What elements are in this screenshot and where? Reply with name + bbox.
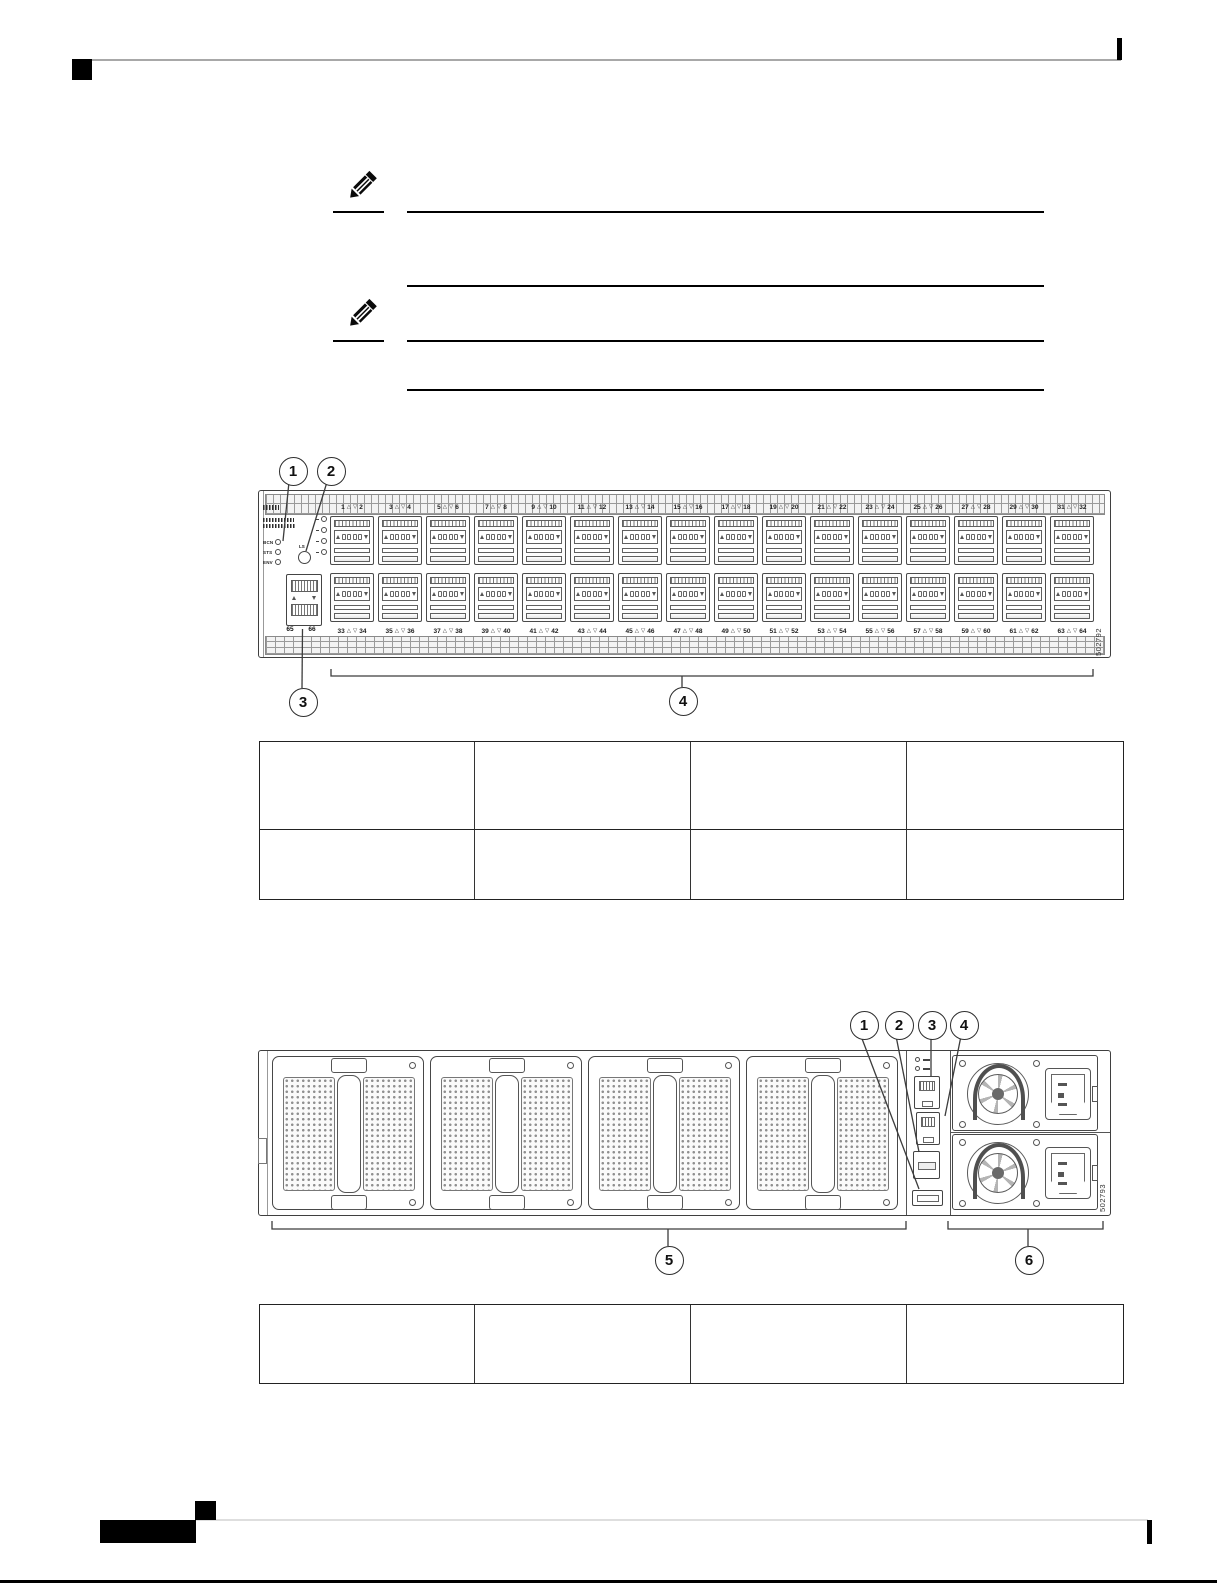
- contact-pad: [443, 534, 447, 540]
- contact-pad: [923, 591, 927, 597]
- port-pair-label: 41△▽42: [522, 627, 566, 636]
- qsfp-port: [1002, 573, 1046, 622]
- triangle-icon: △: [875, 629, 879, 635]
- triangle-icon: ▽: [1073, 505, 1077, 511]
- contact-pad: [785, 534, 789, 540]
- contact-pad: [886, 534, 890, 540]
- port-pair-label: 37△▽38: [426, 627, 470, 636]
- triangle-icon: △: [1019, 505, 1023, 511]
- port-column: 19△▽2051△▽52: [762, 503, 806, 637]
- port-pair-label: 1△▽2: [330, 503, 374, 512]
- mgmt-led: [915, 1057, 920, 1062]
- callout-front-2: 2: [317, 457, 346, 486]
- contact-pad: [689, 591, 693, 597]
- port-number: 29: [1010, 504, 1017, 511]
- contact-pad: [342, 591, 346, 597]
- callout-rear-4: 4: [950, 1011, 979, 1040]
- triangle-down-icon: [364, 592, 368, 596]
- contact-pad: [582, 591, 586, 597]
- port-number: 50: [743, 628, 750, 635]
- psu: [952, 1134, 1098, 1210]
- triangle-down-icon: [1036, 535, 1040, 539]
- fan-grille: [521, 1077, 573, 1191]
- triangle-icon: △: [587, 629, 591, 635]
- note-top-rule: [407, 211, 1044, 213]
- triangle-down-icon: [940, 535, 944, 539]
- qsfp-port: [810, 573, 854, 622]
- port-number: 46: [647, 628, 654, 635]
- contact-pad: [886, 591, 890, 597]
- qsfp-port: [1050, 516, 1094, 565]
- chassis-ear-line: [263, 491, 264, 657]
- contact-pad: [598, 534, 602, 540]
- contact-pad: [881, 591, 885, 597]
- triangle-icon: △: [971, 505, 975, 511]
- contact-pad: [1067, 534, 1071, 540]
- port-number: 2: [359, 504, 363, 511]
- port-pair-label: 13△▽14: [618, 503, 662, 512]
- port-column: 27△▽2859△▽60: [954, 503, 998, 637]
- port-number: 56: [887, 628, 894, 635]
- triangle-up-icon: [480, 535, 484, 539]
- port-column: 29△▽3061△▽62: [1002, 503, 1046, 637]
- port-number: 21: [818, 504, 825, 511]
- triangle-up-icon: [912, 592, 916, 596]
- footer-page-marker-small: [195, 1501, 216, 1520]
- port-number: 34: [359, 628, 366, 635]
- triangle-up-icon: [768, 592, 772, 596]
- contact-pad: [726, 534, 730, 540]
- triangle-icon: △: [347, 629, 351, 635]
- contact-pad: [598, 591, 602, 597]
- triangle-up-icon: [672, 592, 676, 596]
- screw: [1033, 1200, 1040, 1207]
- screw: [567, 1199, 574, 1206]
- contact-pad: [870, 591, 874, 597]
- pencil-note-icon: [341, 298, 383, 342]
- triangle-down-icon: [844, 535, 848, 539]
- triangle-up-icon: [1056, 535, 1060, 539]
- sts-led: [275, 549, 281, 555]
- contact-pad: [401, 591, 405, 597]
- ls-button: [298, 551, 311, 564]
- contact-pad: [1073, 591, 1077, 597]
- port-number: 19: [770, 504, 777, 511]
- port-number: 27: [962, 504, 969, 511]
- contact-pad: [438, 591, 442, 597]
- port-number: 20: [791, 504, 798, 511]
- qsfp-port: [570, 516, 614, 565]
- triangle-down-icon: [892, 535, 896, 539]
- header-right-tick: [1117, 38, 1122, 60]
- qsfp-port: [474, 516, 518, 565]
- port-number: 9: [531, 504, 535, 511]
- contact-pad: [742, 591, 746, 597]
- port-pair-label: 29△▽30: [1002, 503, 1046, 512]
- qsfp-port: [618, 516, 662, 565]
- contact-pad: [635, 591, 639, 597]
- port-number: 12: [599, 504, 606, 511]
- triangle-down-icon: [700, 592, 704, 596]
- contact-pad: [1078, 591, 1082, 597]
- port-pair-label: 9△▽10: [522, 503, 566, 512]
- contact-pad: [1073, 534, 1077, 540]
- sfp-port: [913, 1151, 940, 1179]
- contact-pad: [491, 534, 495, 540]
- fan-latch: [331, 1058, 367, 1073]
- screw: [725, 1062, 732, 1069]
- triangle-icon: ▽: [401, 629, 405, 635]
- qsfp-port: [330, 516, 374, 565]
- port-number: 33: [338, 628, 345, 635]
- contact-pad: [790, 591, 794, 597]
- port-number: 7: [485, 504, 489, 511]
- port-column: 5△▽637△▽38: [426, 503, 470, 637]
- screw: [567, 1062, 574, 1069]
- contact-pad: [646, 534, 650, 540]
- qsfp-port: [570, 573, 614, 622]
- table-cell: [907, 830, 1123, 899]
- port-pair-label: 19△▽20: [762, 503, 806, 512]
- port-number: 47: [674, 628, 681, 635]
- mgmt-led: [915, 1066, 920, 1071]
- port-number: 10: [549, 504, 556, 511]
- callout-rear-5: 5: [655, 1246, 684, 1275]
- contact-pad: [534, 534, 538, 540]
- contact-pad: [497, 534, 501, 540]
- port-number: 4: [407, 504, 411, 511]
- port-number: 11: [578, 504, 585, 511]
- triangle-icon: ▽: [449, 629, 453, 635]
- contact-pad: [726, 591, 730, 597]
- psu: [952, 1055, 1098, 1131]
- triangle-down-icon: [796, 592, 800, 596]
- qsfp-port: [666, 573, 710, 622]
- triangle-icon: △: [443, 505, 447, 511]
- triangle-icon: ▽: [593, 505, 597, 511]
- port-number: 38: [455, 628, 462, 635]
- figure-number-front: 502792: [1094, 592, 1103, 656]
- qsfp-port: [714, 573, 758, 622]
- port-pair-label: 61△▽62: [1002, 627, 1046, 636]
- triangle-down-icon: [604, 592, 608, 596]
- contact-pad: [875, 534, 879, 540]
- bcn-led-label: BCN: [263, 540, 273, 545]
- note-bottom-rule: [407, 285, 1044, 287]
- triangle-icon: △: [923, 629, 927, 635]
- triangle-down-icon: [364, 535, 368, 539]
- triangle-icon: ▽: [1025, 505, 1029, 511]
- contact-pad: [534, 591, 538, 597]
- note-icon-underline: [333, 211, 384, 213]
- port-pair-label: 59△▽60: [954, 627, 998, 636]
- triangle-up-icon: [384, 535, 388, 539]
- psu-latch: [1092, 1086, 1098, 1102]
- qsfp-port: [666, 516, 710, 565]
- fan-latch: [647, 1058, 683, 1073]
- table-cell: [475, 830, 691, 899]
- qsfp-port: [522, 573, 566, 622]
- qsfp-port: [1002, 516, 1046, 565]
- chassis-ear-line: [267, 1051, 268, 1215]
- contact-pad: [1078, 534, 1082, 540]
- fan-latch: [489, 1058, 525, 1073]
- port-pair-label: 3△▽4: [378, 503, 422, 512]
- contact-pad: [822, 534, 826, 540]
- port-number: 16: [695, 504, 702, 511]
- fan-module: [430, 1056, 582, 1210]
- contact-pad: [443, 591, 447, 597]
- triangle-icon: △: [827, 629, 831, 635]
- table-cell: [475, 742, 691, 830]
- port-number: 31: [1058, 504, 1065, 511]
- contact-pad: [582, 534, 586, 540]
- contact-pad: [678, 534, 682, 540]
- qsfp-port: [474, 573, 518, 622]
- contact-pad: [1019, 534, 1023, 540]
- note-top-rule: [407, 340, 1044, 343]
- mgmt-led-label: [923, 1059, 930, 1061]
- port-pair-label: 35△▽36: [378, 627, 422, 636]
- note-icon-underline: [333, 340, 384, 343]
- fan-grille: [679, 1077, 731, 1191]
- contact-pad: [353, 591, 357, 597]
- port-number: 32: [1079, 504, 1086, 511]
- fan-grille: [441, 1077, 493, 1191]
- table-cell: [907, 1305, 1123, 1383]
- contact-pad: [683, 591, 687, 597]
- triangle-icon: △: [779, 505, 783, 511]
- screw: [883, 1062, 890, 1069]
- triangle-up-icon: [816, 592, 820, 596]
- port-pair-label: 27△▽28: [954, 503, 998, 512]
- triangle-down-icon: [556, 592, 560, 596]
- screw: [1033, 1139, 1040, 1146]
- triangle-up-icon: [336, 592, 340, 596]
- footer-right-tick: [1147, 1520, 1152, 1544]
- triangle-up-icon: [864, 535, 868, 539]
- status-led: [321, 538, 327, 544]
- qsfp-port: [954, 573, 998, 622]
- port-number: 44: [599, 628, 606, 635]
- port-number: 23: [866, 504, 873, 511]
- triangle-up-icon: [480, 592, 484, 596]
- port-number: 60: [983, 628, 990, 635]
- port-pair-label: 53△▽54: [810, 627, 854, 636]
- triangle-down-icon: [508, 592, 512, 596]
- contact-pad: [982, 591, 986, 597]
- port-number: 14: [647, 504, 654, 511]
- screw: [883, 1199, 890, 1206]
- triangle-up-icon: [960, 592, 964, 596]
- port-number: 22: [839, 504, 846, 511]
- port-pair-label: 23△▽24: [858, 503, 902, 512]
- contact-pad: [779, 591, 783, 597]
- contact-pad: [934, 591, 938, 597]
- contact-pad: [966, 591, 970, 597]
- contact-pad: [929, 591, 933, 597]
- fan-grille: [757, 1077, 809, 1191]
- triangle-icon: △: [875, 505, 879, 511]
- qsfp-port: [858, 516, 902, 565]
- triangle-icon: △: [731, 505, 735, 511]
- contact-pad: [502, 534, 506, 540]
- status-led-tick: [316, 530, 319, 531]
- screw: [959, 1200, 966, 1207]
- port-number: 37: [434, 628, 441, 635]
- port-number: 49: [722, 628, 729, 635]
- fan-handle-bar: [811, 1075, 835, 1193]
- callout-front-4: 4: [669, 687, 698, 716]
- callout-rear-6: 6: [1015, 1246, 1044, 1275]
- contact-pad: [875, 591, 879, 597]
- port-column: 3△▽435△▽36: [378, 503, 422, 637]
- triangle-icon: △: [491, 505, 495, 511]
- status-led: [321, 527, 327, 533]
- status-led-tick: [316, 541, 319, 542]
- screw: [959, 1121, 966, 1128]
- contact-pad: [1062, 591, 1066, 597]
- triangle-icon: ▽: [543, 505, 547, 511]
- triangle-icon: ▽: [881, 629, 885, 635]
- port-number: 25: [914, 504, 921, 511]
- port-number: 6: [455, 504, 459, 511]
- fan-grille: [283, 1077, 335, 1191]
- port-column: 15△▽1647△▽48: [666, 503, 710, 637]
- triangle-icon: ▽: [497, 629, 501, 635]
- triangle-up-icon: [576, 592, 580, 596]
- triangle-down-icon: [412, 592, 416, 596]
- contact-pad: [838, 591, 842, 597]
- contact-pad: [390, 534, 394, 540]
- triangle-down-icon: [460, 535, 464, 539]
- contact-pad: [449, 591, 453, 597]
- fan-handle-bar: [495, 1075, 519, 1193]
- port-pair-label: 43△▽44: [570, 627, 614, 636]
- triangle-up-icon: [576, 535, 580, 539]
- contact-pad: [694, 534, 698, 540]
- contact-pad: [737, 591, 741, 597]
- contact-pad: [683, 534, 687, 540]
- port-number: 42: [551, 628, 558, 635]
- port-number: 59: [962, 628, 969, 635]
- chassis-ear-latch: [258, 1138, 267, 1164]
- port-pair-label: 25△▽26: [906, 503, 950, 512]
- triangle-up-icon: [816, 535, 820, 539]
- contact-pad: [1014, 591, 1018, 597]
- triangle-icon: ▽: [785, 629, 789, 635]
- port-number: 18: [743, 504, 750, 511]
- port-column: 11△▽1243△▽44: [570, 503, 614, 637]
- triangle-icon: ▽: [977, 629, 981, 635]
- port-number: 3: [389, 504, 393, 511]
- contact-pad: [630, 534, 634, 540]
- triangle-icon: ▽: [929, 629, 933, 635]
- qsfp-port: [426, 516, 470, 565]
- port-65-label: 65: [283, 626, 297, 633]
- qsfp-port: [906, 573, 950, 622]
- triangle-down-icon: [988, 592, 992, 596]
- port-number: 58: [935, 628, 942, 635]
- triangle-icon: △: [1067, 505, 1071, 511]
- qsfp-port: [762, 516, 806, 565]
- front-panel-legend-table: [259, 741, 1124, 900]
- triangle-icon: △: [395, 505, 399, 511]
- triangle-down-icon: [940, 592, 944, 596]
- triangle-down-icon: [700, 535, 704, 539]
- contact-pad: [347, 591, 351, 597]
- triangle-up-icon: [1056, 592, 1060, 596]
- port-pair-label: 57△▽58: [906, 627, 950, 636]
- triangle-up-icon: [1008, 592, 1012, 596]
- port-number: 26: [935, 504, 942, 511]
- port-number: 52: [791, 628, 798, 635]
- triangle-icon: △: [491, 629, 495, 635]
- document-page: BCN STS ENV LS 65 66 1△▽233△▽343△▽435△▽3…: [0, 0, 1225, 1585]
- screw: [1033, 1060, 1040, 1067]
- port-number: 48: [695, 628, 702, 635]
- fan-latch: [489, 1195, 525, 1210]
- contact-pad: [550, 591, 554, 597]
- contact-pad: [545, 591, 549, 597]
- bcn-led: [275, 539, 281, 545]
- contact-pad: [982, 534, 986, 540]
- port-number: 24: [887, 504, 894, 511]
- triangle-icon: ▽: [881, 505, 885, 511]
- triangle-icon: ▽: [449, 505, 453, 511]
- triangle-down-icon: [604, 535, 608, 539]
- contact-pad: [881, 534, 885, 540]
- port-column: 21△▽2253△▽54: [810, 503, 854, 637]
- port-column: 31△▽3263△▽64: [1050, 503, 1094, 637]
- status-led-tick: [316, 552, 319, 553]
- triangle-down-icon: [312, 596, 316, 600]
- port-number: 41: [530, 628, 537, 635]
- port-number: 35: [386, 628, 393, 635]
- status-led: [321, 516, 327, 522]
- triangle-icon: ▽: [833, 505, 837, 511]
- triangle-down-icon: [1036, 592, 1040, 596]
- callout-rear-2: 2: [885, 1011, 914, 1040]
- mgmt-led-label: [923, 1068, 930, 1070]
- port-number: 54: [839, 628, 846, 635]
- triangle-icon: ▽: [689, 629, 693, 635]
- triangle-up-icon: [672, 535, 676, 539]
- triangle-icon: △: [1019, 629, 1023, 635]
- port-number: 28: [983, 504, 990, 511]
- port-number: 45: [626, 628, 633, 635]
- contact-pad: [827, 534, 831, 540]
- qsfp-port: [714, 516, 758, 565]
- port-number: 15: [674, 504, 681, 511]
- bottom-rule: [0, 1580, 1217, 1583]
- triangle-up-icon: [864, 592, 868, 596]
- screw: [1033, 1121, 1040, 1128]
- triangle-down-icon: [844, 592, 848, 596]
- contact-pad: [929, 534, 933, 540]
- contact-pad: [347, 534, 351, 540]
- triangle-up-icon: [292, 596, 296, 600]
- fan-latch: [647, 1195, 683, 1210]
- contact-pad: [1014, 534, 1018, 540]
- contact-pad: [742, 534, 746, 540]
- triangle-icon: ▽: [977, 505, 981, 511]
- port-pair-label: 39△▽40: [474, 627, 518, 636]
- contact-pad: [502, 591, 506, 597]
- triangle-icon: △: [923, 505, 927, 511]
- port-column: 25△▽2657△▽58: [906, 503, 950, 637]
- port-pair-label: 15△▽16: [666, 503, 710, 512]
